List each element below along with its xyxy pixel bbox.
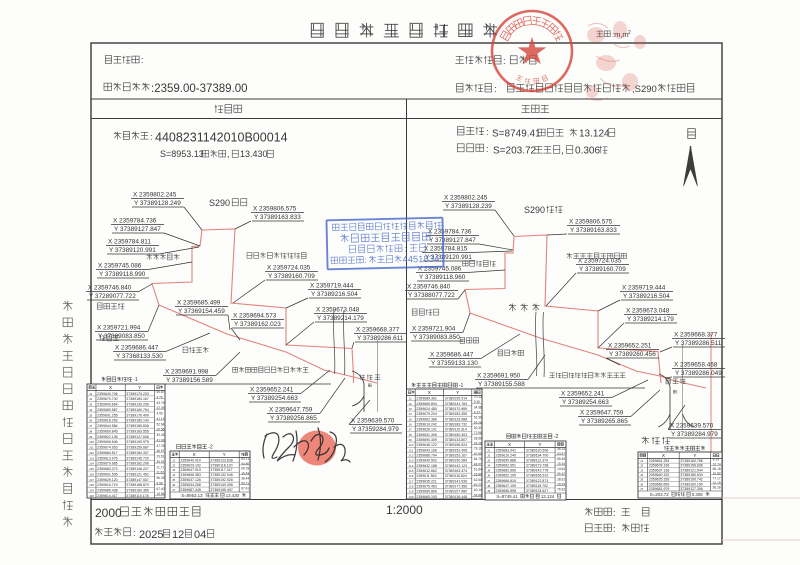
svg-text:2359687.445: 2359687.445	[180, 488, 200, 492]
svg-text:J16: J16	[89, 472, 94, 476]
svg-text:Y 37389083.850: Y 37389083.850	[98, 333, 145, 340]
svg-text:Y 37389120.991: Y 37389120.991	[109, 247, 156, 254]
svg-text:X 2359652.241: X 2359652.241	[250, 387, 294, 394]
svg-text:37389179.798: 37389179.798	[526, 464, 548, 468]
svg-text:J10: J10	[409, 443, 414, 447]
svg-text:37389115.824: 37389115.824	[445, 474, 467, 478]
svg-text:2359690.309: 2359690.309	[416, 438, 436, 442]
svg-text:2359647.199: 2359647.199	[496, 484, 516, 488]
svg-text:42.55: 42.55	[474, 452, 482, 456]
svg-text:J5: J5	[172, 478, 176, 482]
svg-text:X 2359724.035: X 2359724.035	[578, 258, 622, 265]
svg-text:X 2359668.377: X 2359668.377	[356, 327, 400, 334]
svg-text:69.78: 69.78	[241, 467, 249, 471]
svg-text:X 2359691.998: X 2359691.998	[165, 369, 209, 376]
svg-text:13.124: 13.124	[541, 494, 555, 499]
svg-text:72.96: 72.96	[474, 431, 482, 435]
svg-text:2359696.546: 2359696.546	[97, 440, 117, 444]
svg-text:24.28: 24.28	[474, 442, 482, 446]
svg-text:2359685.866: 2359685.866	[416, 490, 436, 494]
svg-text:2359691.595: 2359691.595	[97, 472, 117, 476]
svg-text:X 2359721.994: X 2359721.994	[97, 325, 141, 332]
svg-text:37389142.123: 37389142.123	[445, 464, 467, 468]
svg-text:2359634.268: 2359634.268	[180, 483, 200, 487]
svg-text:50.21: 50.21	[241, 482, 249, 486]
svg-text:J13: J13	[89, 456, 94, 460]
svg-text:J5: J5	[487, 469, 491, 473]
svg-text:X 2359639.570: X 2359639.570	[670, 423, 714, 430]
svg-text:Y: Y	[456, 390, 459, 395]
svg-text:X 2359691.950: X 2359691.950	[477, 373, 521, 380]
svg-text:-1: -1	[459, 383, 464, 389]
svg-text:S=203.72: S=203.72	[493, 146, 537, 157]
svg-text:X: X	[193, 452, 196, 457]
svg-text:Y: Y	[538, 442, 541, 447]
svg-text:37389157.980: 37389157.980	[445, 490, 467, 494]
svg-text:37389184.337: 37389184.337	[126, 451, 148, 455]
svg-text:28.93: 28.93	[557, 482, 565, 486]
svg-text::: :	[141, 55, 144, 65]
svg-text:Y 37389286.511: Y 37389286.511	[675, 340, 722, 347]
svg-text:2359614.417: 2359614.417	[97, 494, 117, 498]
svg-text:X 2359652.251: X 2359652.251	[608, 343, 652, 350]
svg-text::: :	[613, 524, 616, 535]
svg-text:,: ,	[227, 149, 230, 159]
svg-text:37389127.396: 37389127.396	[680, 487, 702, 491]
svg-text:2359640.410: 2359640.410	[180, 458, 200, 462]
svg-text:Y 37389162.023: Y 37389162.023	[234, 321, 281, 328]
svg-text:2359691.255: 2359691.255	[97, 413, 117, 417]
svg-text:8.58: 8.58	[156, 481, 162, 485]
svg-text:37389156.919: 37389156.919	[526, 474, 548, 478]
svg-text:26.89: 26.89	[474, 473, 482, 477]
svg-text:37389149.396: 37389149.396	[210, 483, 232, 487]
svg-text:37389188.879: 37389188.879	[126, 483, 148, 487]
svg-text:2359611.563: 2359611.563	[416, 474, 436, 478]
svg-text:2359622.136: 2359622.136	[97, 435, 117, 439]
svg-text:37389110.314: 37389110.314	[445, 428, 467, 432]
svg-text:44518343: 44518343	[402, 254, 445, 266]
svg-text:X 2359673.048: X 2359673.048	[316, 307, 360, 314]
svg-text:J4: J4	[640, 473, 644, 477]
svg-text:Y: Y	[138, 385, 141, 390]
svg-text:78.10: 78.10	[474, 447, 482, 451]
svg-text:28.59: 28.59	[474, 436, 482, 440]
svg-text:37389192.926: 37389192.926	[210, 478, 232, 482]
svg-text:2359681.979: 2359681.979	[649, 487, 669, 491]
svg-text:2359640.706: 2359640.706	[97, 392, 117, 396]
svg-text:J4: J4	[172, 473, 176, 477]
svg-text:Y 37389156.589: Y 37389156.589	[166, 377, 213, 384]
svg-text:X 2359719.444: X 2359719.444	[310, 283, 354, 290]
svg-text:37389118.120: 37389118.120	[210, 463, 232, 467]
svg-text:Y: Y	[693, 453, 696, 458]
svg-text:Y 37388077.722: Y 37388077.722	[408, 292, 455, 299]
svg-text:51.84: 51.84	[474, 467, 482, 471]
svg-text:X 2359647.759: X 2359647.759	[269, 407, 313, 414]
svg-text:-2: -2	[208, 445, 213, 451]
svg-text:22.39: 22.39	[156, 406, 164, 410]
svg-text:X 2359746.840: X 2359746.840	[407, 284, 451, 291]
svg-text:2025: 2025	[139, 529, 163, 541]
svg-text:37389112.379: 37389112.379	[526, 459, 548, 463]
svg-text:28.91: 28.91	[557, 477, 565, 481]
svg-text:2359635.221: 2359635.221	[416, 479, 436, 483]
svg-text:J12: J12	[409, 454, 414, 458]
svg-text:Y 37389160.709: Y 37389160.709	[579, 266, 626, 273]
svg-text:Y 37389128.249: Y 37389128.249	[134, 200, 181, 207]
svg-text:J6: J6	[172, 483, 176, 487]
svg-text:2359683.373: 2359683.373	[97, 467, 117, 471]
svg-text:J7: J7	[409, 428, 413, 432]
svg-text:2359669.894: 2359669.894	[416, 402, 436, 406]
svg-text:37389132.946: 37389132.946	[210, 473, 232, 477]
svg-text:37389194.700: 37389194.700	[526, 454, 548, 458]
svg-text:Y 37389127.847: Y 37389127.847	[114, 226, 161, 233]
svg-text:37389183.355: 37389183.355	[445, 412, 467, 416]
svg-text:2: 2	[628, 30, 631, 36]
svg-text:Y 37389118.990: Y 37389118.990	[99, 271, 146, 278]
svg-text:2359651.254: 2359651.254	[649, 459, 669, 463]
svg-text:J9: J9	[409, 438, 413, 442]
svg-text::: :	[494, 84, 497, 95]
svg-text:X 2359721.904: X 2359721.904	[412, 326, 456, 333]
svg-text:37389170.989: 37389170.989	[445, 407, 467, 411]
svg-text:X 2359647.759: X 2359647.759	[580, 410, 624, 417]
svg-text:X 2359658.468: X 2359658.468	[674, 362, 718, 369]
svg-text:J4: J4	[409, 412, 413, 416]
svg-text:2359625.328: 2359625.328	[649, 478, 669, 482]
svg-text::: :	[486, 144, 489, 155]
svg-text:Y 37389214.179: Y 37389214.179	[317, 315, 364, 322]
svg-text:37389155.914: 37389155.914	[445, 397, 467, 401]
svg-text:67.40: 67.40	[156, 487, 164, 491]
svg-text:X 2359719.444: X 2359719.444	[622, 285, 666, 292]
svg-text:J15: J15	[89, 467, 94, 471]
svg-text:37389163.474: 37389163.474	[445, 469, 467, 473]
svg-text:X 2359784.736: X 2359784.736	[428, 229, 472, 236]
svg-text:23.51: 23.51	[156, 455, 164, 459]
svg-text:Y 37389284.979: Y 37389284.979	[671, 431, 718, 438]
svg-text:J10: J10	[89, 440, 94, 444]
svg-text:2359675.463: 2359675.463	[416, 485, 436, 489]
svg-text:J9: J9	[487, 489, 491, 493]
svg-text:37389136.448: 37389136.448	[445, 495, 467, 499]
svg-text:J9: J9	[89, 435, 93, 439]
svg-text:37389133.807: 37389133.807	[445, 438, 467, 442]
svg-text:2359670.740: 2359670.740	[97, 397, 117, 401]
svg-text:68.88: 68.88	[474, 493, 482, 497]
svg-text:Y 37369154.459: Y 37369154.459	[178, 308, 225, 315]
svg-text:2359678.196: 2359678.196	[649, 464, 669, 468]
svg-text:37389176.499: 37389176.499	[126, 413, 148, 417]
svg-text:S=8749.41: S=8749.41	[492, 129, 541, 140]
svg-text:37389141.764: 37389141.764	[445, 402, 467, 406]
svg-text:J6: J6	[487, 474, 491, 478]
svg-text:J2: J2	[640, 464, 644, 468]
svg-text:37389150.289: 37389150.289	[445, 459, 467, 463]
svg-text:2359649.592: 2359649.592	[416, 459, 436, 463]
svg-text:J3: J3	[172, 468, 176, 472]
svg-text:S=8749.41: S=8749.41	[496, 494, 518, 499]
svg-text:Y 37389260.456: Y 37389260.456	[609, 351, 656, 358]
svg-text:37389134.627: 37389134.627	[526, 489, 548, 493]
svg-text::: :	[404, 244, 407, 254]
svg-text:J7: J7	[89, 424, 93, 428]
svg-text:J8: J8	[487, 484, 491, 488]
svg-text:Y 37389256.865: Y 37389256.865	[270, 415, 317, 422]
svg-text:X 2359745.086: X 2359745.086	[98, 263, 142, 270]
svg-text:37389185.143: 37389185.143	[126, 419, 148, 423]
svg-text:10.74: 10.74	[713, 462, 721, 466]
svg-text:2359631.396: 2359631.396	[416, 433, 436, 437]
svg-text:67.41: 67.41	[241, 486, 249, 490]
svg-text:12: 12	[172, 529, 184, 541]
svg-text:J14: J14	[409, 464, 414, 468]
svg-text:41.13: 41.13	[156, 417, 164, 421]
svg-text:65.35: 65.35	[557, 457, 565, 461]
svg-text:37389160.150: 37389160.150	[680, 482, 702, 486]
svg-text:52.30: 52.30	[474, 416, 482, 420]
svg-text:1:2000: 1:2000	[386, 503, 423, 517]
svg-text:2359626.101: 2359626.101	[416, 428, 436, 432]
svg-text:37389153.167: 37389153.167	[445, 454, 467, 458]
svg-text:J11: J11	[89, 446, 94, 450]
svg-text:2359618.263: 2359618.263	[97, 419, 117, 423]
svg-text:37389152.408: 37389152.408	[445, 448, 467, 452]
svg-text:J2: J2	[487, 454, 491, 458]
svg-text:04: 04	[194, 529, 206, 541]
svg-text:70.13: 70.13	[474, 395, 482, 399]
svg-text:Y 37289077.722: Y 37289077.722	[89, 293, 136, 300]
svg-text:15.34: 15.34	[557, 462, 565, 466]
svg-text:X 2359806.575: X 2359806.575	[253, 206, 297, 213]
svg-text:47.78: 47.78	[156, 444, 164, 448]
svg-text:37389147.537: 37389147.537	[126, 478, 148, 482]
svg-text:37389195.497: 37389195.497	[210, 488, 232, 492]
svg-text:53.71: 53.71	[241, 457, 249, 461]
svg-text:37389139.296: 37389139.296	[126, 403, 148, 407]
svg-text:J13: J13	[409, 459, 414, 463]
svg-text:2359615.719: 2359615.719	[97, 483, 117, 487]
svg-text:10.82: 10.82	[713, 472, 721, 476]
svg-text:S=8953.13: S=8953.13	[181, 493, 203, 498]
svg-text:55.42: 55.42	[557, 472, 565, 476]
svg-text:J14: J14	[89, 462, 94, 466]
svg-text:J4: J4	[89, 408, 93, 412]
svg-text:2359682.666: 2359682.666	[496, 469, 516, 473]
svg-text:J3: J3	[487, 459, 491, 463]
svg-text:J2: J2	[172, 463, 176, 467]
svg-text:37389110.178: 37389110.178	[126, 494, 148, 498]
svg-text:2359640.192: 2359640.192	[649, 473, 669, 477]
svg-text:37389182.206: 37389182.206	[126, 462, 148, 466]
svg-text:37389121.452: 37389121.452	[126, 472, 148, 476]
svg-text:X 2359784.736: X 2359784.736	[113, 218, 157, 225]
svg-text:X 2359685.499: X 2359685.499	[177, 300, 221, 307]
svg-text:J16: J16	[409, 474, 414, 478]
svg-text:30.43: 30.43	[156, 433, 164, 437]
svg-text:X 2359806.575: X 2359806.575	[569, 219, 613, 226]
svg-text:54.80: 54.80	[241, 462, 249, 466]
svg-text:J18: J18	[409, 485, 414, 489]
svg-text:37389180.534: 37389180.534	[680, 473, 702, 477]
svg-text:37389123.838: 37389123.838	[210, 458, 232, 462]
svg-text:2359689.361: 2359689.361	[416, 397, 436, 401]
svg-text:2000: 2000	[95, 506, 122, 520]
svg-text:,: ,	[561, 146, 564, 157]
svg-text:11.62: 11.62	[156, 471, 164, 475]
svg-text:31.15: 31.15	[713, 481, 721, 485]
svg-text:Y 37389155.588: Y 37389155.588	[478, 381, 525, 388]
svg-text:Y 37389216.504: Y 37389216.504	[311, 291, 358, 298]
svg-text:14.64: 14.64	[557, 467, 565, 471]
svg-text:Y 37359284.979: Y 37359284.979	[352, 426, 399, 433]
svg-text:2359612.662: 2359612.662	[416, 469, 436, 473]
svg-text:Y 37389128.239: Y 37389128.239	[445, 203, 492, 210]
svg-text:37389177.356: 37389177.356	[445, 485, 467, 489]
svg-text:2359665.193: 2359665.193	[416, 495, 436, 499]
svg-text:J1: J1	[640, 459, 644, 463]
svg-text:Y 37389286.049: Y 37389286.049	[675, 370, 722, 377]
svg-text:4.95: 4.95	[156, 412, 162, 416]
svg-text:59.26: 59.26	[474, 421, 482, 425]
svg-text:J11: J11	[409, 448, 414, 452]
svg-text:J7: J7	[487, 479, 491, 483]
svg-text:2359684.517: 2359684.517	[97, 451, 117, 455]
svg-text:J7: J7	[640, 487, 644, 491]
svg-text:2359666.816: 2359666.816	[496, 479, 516, 483]
svg-text:34.58: 34.58	[474, 405, 482, 409]
svg-text:37389156.696: 37389156.696	[680, 464, 702, 468]
svg-text:X 2359686.447: X 2359686.447	[430, 352, 474, 359]
svg-text:4408231142010B00014: 4408231142010B00014	[155, 131, 288, 145]
svg-text:62.54: 62.54	[474, 478, 482, 482]
svg-text:X 2359802.245: X 2359802.245	[444, 195, 488, 202]
svg-text:37389186.836: 37389186.836	[126, 424, 148, 428]
svg-text:4.70: 4.70	[156, 395, 162, 399]
svg-text:63.79: 63.79	[156, 401, 164, 405]
svg-text:X: X	[662, 453, 665, 458]
svg-text:2359610.249: 2359610.249	[496, 454, 516, 458]
svg-text:Y: Y	[223, 452, 226, 457]
svg-text:76.92: 76.92	[557, 487, 565, 491]
svg-text:J3: J3	[409, 407, 413, 411]
svg-text:63.57: 63.57	[557, 452, 565, 456]
svg-text:2359647.919: 2359647.919	[180, 468, 200, 472]
svg-text:64.70: 64.70	[474, 457, 482, 461]
svg-text:J19: J19	[409, 490, 414, 494]
svg-text:X 2359686.447: X 2359686.447	[115, 345, 159, 352]
svg-text:36.44: 36.44	[241, 477, 249, 481]
svg-text:2359679.685: 2359679.685	[97, 462, 117, 466]
svg-text:J5: J5	[89, 413, 93, 417]
svg-text:2359632.158: 2359632.158	[416, 464, 436, 468]
svg-text:2359643.664: 2359643.664	[97, 403, 117, 407]
svg-text:37389133.988: 37389133.988	[445, 417, 467, 421]
svg-text:9.19: 9.19	[713, 458, 719, 462]
svg-text:J12: J12	[89, 451, 94, 455]
svg-text:Y 37389083.850: Y 37389083.850	[413, 334, 460, 341]
svg-text:2359652.195: 2359652.195	[496, 474, 516, 478]
svg-text:Y 37389286.611: Y 37389286.611	[357, 335, 404, 342]
svg-text:2359656.383: 2359656.383	[180, 473, 200, 477]
svg-text:Y 37389214.179: Y 37389214.179	[627, 316, 674, 323]
svg-text:S=8953.13: S=8953.13	[160, 149, 204, 159]
svg-text:37389115.702: 37389115.702	[526, 484, 548, 488]
svg-text:J1: J1	[409, 397, 413, 401]
svg-text:J5: J5	[409, 417, 413, 421]
svg-text:-2: -2	[554, 434, 559, 440]
svg-text:37389150.303: 37389150.303	[445, 433, 467, 437]
svg-text:37389145.720: 37389145.720	[126, 456, 148, 460]
svg-text:J7: J7	[172, 488, 176, 492]
svg-text:37389122.873: 37389122.873	[526, 479, 548, 483]
svg-text:37389190.975: 37389190.975	[126, 440, 148, 444]
svg-text:J8: J8	[89, 429, 93, 433]
svg-text:2359629.120: 2359629.120	[97, 478, 117, 482]
svg-text:40.14: 40.14	[474, 488, 482, 492]
svg-text:Y 37389163.833: Y 37389163.833	[570, 227, 617, 234]
svg-text:20.56: 20.56	[156, 428, 164, 432]
svg-text:X 2359724.035: X 2359724.035	[267, 265, 311, 272]
svg-text:J2: J2	[89, 397, 93, 401]
svg-text:J17: J17	[409, 479, 414, 483]
svg-text:S290: S290	[524, 205, 545, 215]
svg-text:2359680.587: 2359680.587	[97, 408, 117, 412]
svg-text:9.30: 9.30	[474, 400, 480, 404]
svg-text:2359685.438: 2359685.438	[97, 489, 117, 493]
svg-text:2359686.794: 2359686.794	[416, 454, 436, 458]
svg-text:2359619.242: 2359619.242	[416, 422, 436, 426]
svg-text:2359683.941: 2359683.941	[496, 448, 516, 452]
svg-text:16.86: 16.86	[156, 492, 164, 496]
svg-text:46.97: 46.97	[156, 449, 164, 453]
svg-text:J15: J15	[409, 469, 414, 473]
svg-text:J6: J6	[640, 482, 644, 486]
svg-text:Y 37389160.709: Y 37389160.709	[268, 273, 315, 280]
svg-text:30.91: 30.91	[156, 460, 164, 464]
svg-text:J1: J1	[172, 458, 176, 462]
svg-text:Y 37389216.504: Y 37389216.504	[623, 293, 670, 300]
svg-text:37389146.227: 37389146.227	[126, 467, 148, 471]
svg-text:Y 37389127.847: Y 37389127.847	[429, 237, 476, 244]
svg-text:2359679.204: 2359679.204	[416, 412, 436, 416]
svg-text:J4: J4	[487, 464, 491, 468]
svg-text:37389180.385: 37389180.385	[126, 489, 148, 493]
svg-text:2359629.192: 2359629.192	[180, 463, 200, 467]
svg-text:2359662.386: 2359662.386	[416, 417, 436, 421]
svg-text:J8: J8	[409, 433, 413, 437]
svg-text:2359613.976: 2359613.976	[97, 456, 117, 460]
svg-text:37389127.606: 37389127.606	[126, 435, 148, 439]
svg-text:2359643.166: 2359643.166	[416, 448, 436, 452]
svg-text:2359648.122: 2359648.122	[416, 443, 436, 447]
svg-text:2359624.480: 2359624.480	[416, 407, 436, 411]
svg-text::: :	[133, 528, 136, 539]
svg-text:30.31: 30.31	[474, 426, 482, 430]
svg-text:41.63: 41.63	[156, 438, 164, 442]
svg-text:37389160.766: 37389160.766	[680, 459, 702, 463]
svg-text:J3: J3	[640, 468, 644, 472]
svg-text:37389121.544: 37389121.544	[680, 468, 702, 472]
svg-text:2359637.138: 2359637.138	[649, 468, 669, 472]
svg-text:J19: J19	[89, 489, 94, 493]
svg-text:56.18: 56.18	[713, 467, 721, 471]
svg-text:48.61: 48.61	[474, 462, 482, 466]
svg-text:37389120.596: 37389120.596	[526, 448, 548, 452]
svg-text:62.23: 62.23	[474, 483, 482, 487]
